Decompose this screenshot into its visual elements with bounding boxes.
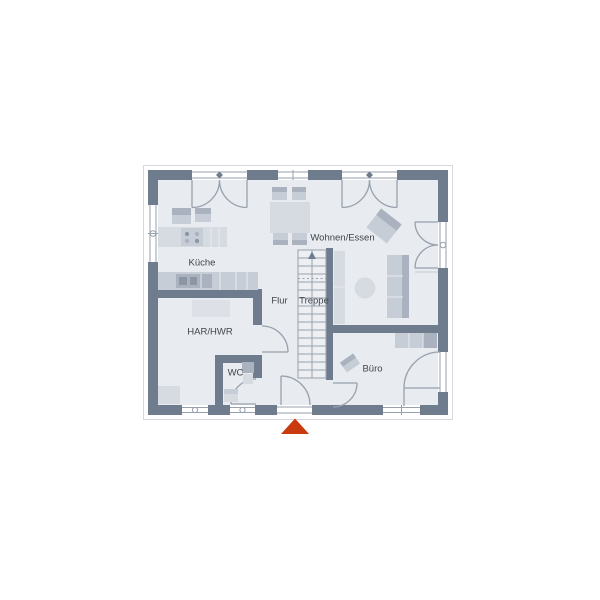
floor-plan: Küche Wohnen/Essen Flur Treppe HAR/HWR W… bbox=[0, 0, 600, 600]
sofa-back bbox=[402, 255, 409, 318]
staircase bbox=[298, 250, 326, 378]
coffee-table bbox=[355, 278, 376, 299]
room-label-flur: Flur bbox=[271, 296, 287, 306]
entrance-arrow-icon bbox=[281, 419, 309, 435]
room-label-treppe: Treppe bbox=[299, 296, 329, 306]
dining-table bbox=[270, 202, 310, 233]
room-label-wohnen-essen: Wohnen/Essen bbox=[310, 233, 374, 243]
room-label-wc: WC bbox=[228, 368, 244, 378]
room-label-buero: Büro bbox=[362, 364, 382, 374]
room-label-kueche: Küche bbox=[189, 258, 216, 268]
room-label-har-hwr: HAR/HWR bbox=[187, 327, 232, 337]
cooktop bbox=[181, 228, 203, 246]
sofa-seat bbox=[387, 255, 403, 318]
wc-sink bbox=[242, 362, 254, 373]
